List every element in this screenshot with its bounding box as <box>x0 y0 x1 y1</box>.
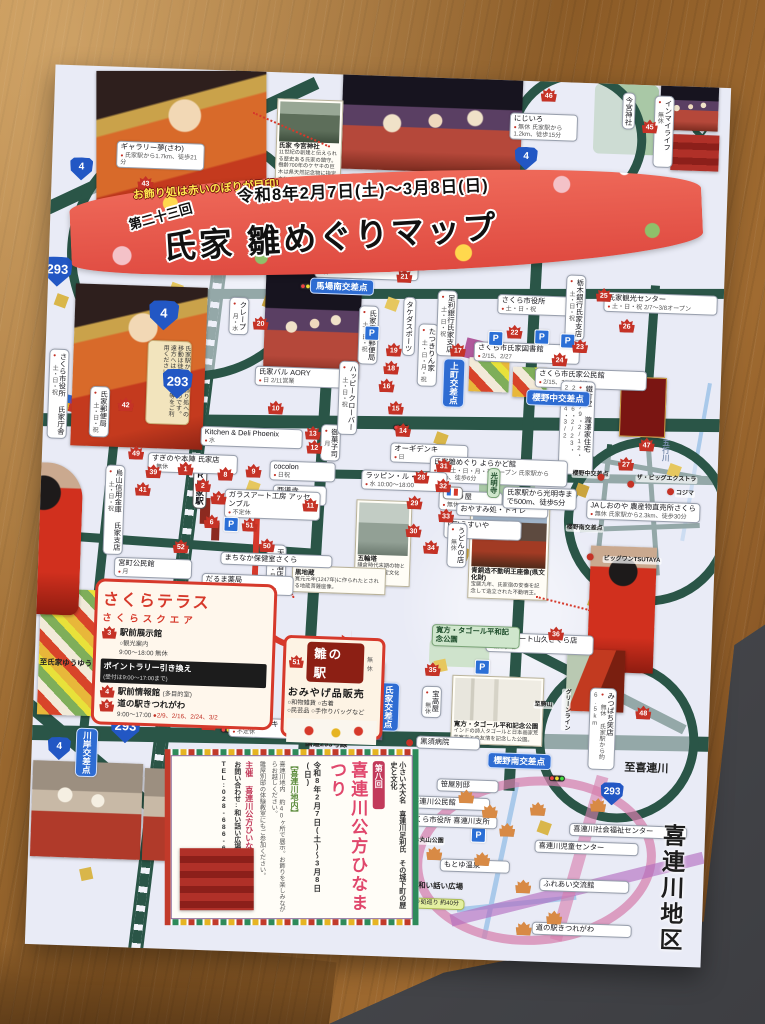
label-text: P <box>539 332 545 342</box>
label-text: 12 <box>310 445 318 452</box>
map-label: 15 <box>388 400 404 415</box>
label-subtext: 不定休 <box>228 508 316 518</box>
label-subtext: 月 <box>118 568 188 578</box>
label-text: 喜連川地区 <box>656 823 687 954</box>
label-text: 栃木銀行氏家支店 <box>574 279 585 338</box>
open-days-label: ●2/9、2/16、2/24、3/2 <box>153 712 218 721</box>
hours-label: 9:00〜17:00 <box>117 711 152 719</box>
hina-meguri-map-sheet: 氏家 今宮神社 11世紀の創建と伝えられる歴史ある氏家の鎮守。樹齢700年のケヤ… <box>25 64 731 967</box>
photo-tagore-park <box>454 678 541 723</box>
label-text: クレープ <box>238 301 248 330</box>
label-text: 47 <box>643 442 651 449</box>
label-text: 笹屋別邸 <box>441 779 470 789</box>
label-text: オーギデンキ <box>394 444 438 455</box>
map-label: ハッピークローバー 土・日・祝 <box>337 361 360 435</box>
marker-badge-3: 3 <box>102 625 117 639</box>
label-text: 45 <box>646 124 654 131</box>
label-text: 7 <box>216 495 220 502</box>
label-text: 293 <box>603 786 620 798</box>
label-text: 51 <box>246 522 254 529</box>
label-text: 26 <box>623 323 631 330</box>
label-subtext: 土・日・祝 <box>501 305 573 315</box>
marker-badge-51: 51 <box>289 654 304 668</box>
map-label: P <box>364 325 380 341</box>
label-text: グリーンライン <box>563 689 570 731</box>
festival-body-2: 雛屋別邸の体験教室にもご参加ください。 <box>258 761 266 913</box>
label-text: 足利銀行氏家支店 <box>446 294 457 353</box>
info-hall-label: 駅前情報館 <box>118 686 161 697</box>
map-label: 宮町公民館 月 <box>114 557 193 580</box>
label-text: 28 <box>417 474 425 481</box>
label-text: 櫻野南交差点 <box>493 755 545 767</box>
label-text: 25 <box>600 293 608 300</box>
map-label: 光明寺 <box>487 468 501 498</box>
label-text: 五行川 <box>661 439 671 462</box>
label-text: P <box>475 830 481 840</box>
photo-tiered-hina-display <box>180 848 254 910</box>
label-text: コジマ <box>676 490 694 497</box>
map-label <box>549 775 565 782</box>
map-label: 櫻野中交差点 <box>526 389 590 408</box>
label-text: ハッピークローバー <box>347 365 358 431</box>
map-label: 10 <box>267 400 283 415</box>
confetti-gold <box>54 293 69 308</box>
label-text: 川岸交差点 <box>81 731 92 774</box>
label-text: 氏家交差点 <box>383 685 394 728</box>
map-label: 至勝山 <box>533 702 553 710</box>
label-text: にじいろ <box>514 114 543 124</box>
label-text: インマイライフ <box>663 100 674 151</box>
red-dotted-link <box>536 596 591 611</box>
label-text: P <box>228 519 234 529</box>
map-label: P <box>223 517 239 533</box>
label-text: 黒須病院 <box>420 737 449 747</box>
map-label: 今宮神社 <box>622 92 636 130</box>
label-text: 18 <box>387 365 395 372</box>
label-text: 9 <box>251 469 255 476</box>
festival-intro: 小さい大大名 喜連川足利氏 その城下町の歴史と文化 <box>388 761 406 913</box>
label-text: さくら市役所 喜連川支所 <box>407 814 490 826</box>
map-label: 26 <box>619 318 635 333</box>
banner-title: 氏家 雛めぐりマップ <box>162 200 500 268</box>
map-label: ラッピン・ル・モ 水 10:00〜18:00 <box>361 469 448 492</box>
festival-title: 喜連川公方ひなまつり <box>326 761 369 913</box>
map-label: 五行川 <box>660 436 672 465</box>
label-text: 293 <box>166 374 188 390</box>
label-subtext: 日祝 <box>273 471 331 480</box>
label-text: ザ・ビッグエクストラ <box>636 475 696 483</box>
label-text: 4 <box>523 151 529 162</box>
map-label: 4 <box>70 157 94 181</box>
marker-badge-5: 5 <box>99 698 114 712</box>
map-label: コジマ <box>675 490 695 498</box>
festival-area: 【喜連川地内】 <box>289 761 299 913</box>
label-text: 烏山信用金庫 氏家支店 <box>113 469 125 551</box>
exhibit-hall-hours: 9:00〜18:00 無休 <box>119 647 168 658</box>
label-text: 30 <box>409 528 417 535</box>
map-label: うどんの店 無休 <box>446 522 468 567</box>
map-label: 19 <box>386 342 402 357</box>
label-text: 22 <box>510 330 518 337</box>
label-subtext: 日 2/11営業 <box>259 377 343 387</box>
map-label: 18 <box>383 360 399 375</box>
map-label: 氏家バル AORY 日 2/11営業 <box>254 366 347 389</box>
label-text: 33 <box>442 513 450 520</box>
label-subtext: 土・日・月・祝 <box>419 327 428 382</box>
label-text: 和い話い広場 <box>418 881 463 892</box>
festival-dates: 令和8年2月7日(土)〜3月8日(日) <box>303 761 322 913</box>
exhibit-hall-label: 駅前展示館 <box>120 627 163 638</box>
map-label: ギャラリー夢(さわ) 氏家駅から1.7km、徒歩21分 <box>116 141 205 171</box>
map-label: 上町交差点 <box>442 358 466 408</box>
map-label: まちなか保健室さくら <box>220 552 332 569</box>
label-text: 41 <box>139 487 147 494</box>
hina-station-closed: 無休 <box>367 655 380 673</box>
label-text: 今宮神社 <box>625 96 635 125</box>
label-text: 10 <box>272 405 280 412</box>
label-text: 50 <box>263 543 271 550</box>
map-label: にじいろ 無休 氏家駅から1.2km、徒歩15分 <box>509 112 578 142</box>
label-text: Kitchen & Deli Phoenix <box>205 427 280 439</box>
label-subtext: 水 <box>204 437 298 448</box>
label-subtext: 月 <box>322 428 330 457</box>
label-text: ビッグワンTSUTAYA <box>604 556 661 564</box>
label-text: 2 <box>201 483 205 490</box>
label-subtext: 水 10:00〜18:00 <box>365 480 443 490</box>
label-text: 櫻野中交差点 <box>532 392 584 404</box>
label-text: 至勝山 <box>534 702 552 709</box>
map-label: 櫻野南交差点 <box>487 752 551 771</box>
map-label: P <box>475 659 491 675</box>
label-text: 29 <box>410 500 418 507</box>
label-text: 35 <box>429 667 437 674</box>
map-label: 川岸交差点 <box>75 728 99 778</box>
label-text: P <box>369 328 375 338</box>
info-hall-note: (多目的室) <box>162 691 192 699</box>
label-text: 喜連川社会福祉センター <box>573 824 654 836</box>
point-rally-hours: (受付は9:00〜17:00まで) <box>103 672 263 687</box>
map-label: 笹屋別邸 <box>436 778 498 793</box>
caption-body: 宝暦九年、氏家宿の安泰を記念して造立された不動明王。 <box>470 582 544 598</box>
label-text: タケダスポーツ <box>404 301 415 352</box>
map-label: 氏家郵便局 土・日・祝 <box>89 386 111 437</box>
map-label: 櫻野南交差点 <box>566 525 604 534</box>
map-label: グリーンライン <box>561 689 572 731</box>
map-label: P <box>488 331 504 347</box>
label-text: 16 <box>382 383 390 390</box>
label-text: さくら市役所 <box>501 295 545 306</box>
map-label: クレープ 月・水 <box>228 297 249 336</box>
photo-hina-tiered-small <box>670 134 719 172</box>
label-text: 氏家郵便局 <box>99 390 109 427</box>
label-text: cocolon <box>274 461 299 471</box>
label-text: 19 <box>390 347 398 354</box>
sakura-terrace-box: さくらテラス さくらスクエア 3 駅前展示館 ○観光案内 9:00〜18:00 … <box>91 578 278 730</box>
map-label: みつばち笑店 無休 氏家駅から約6.5km <box>587 688 617 771</box>
label-text: まちなか保健室さくら <box>224 553 297 565</box>
map-label: 16 <box>378 378 394 393</box>
map-label: Kitchen & Deli Phoenix 水 <box>200 426 303 450</box>
label-text: 14 <box>399 428 407 435</box>
map-label: 41 <box>135 482 151 497</box>
label-text: 17 <box>454 348 462 355</box>
map-label: 栃木銀行氏家支店 土・日・祝 <box>564 274 586 341</box>
label-text: 293 <box>46 261 68 277</box>
label-text: 24 <box>556 357 564 364</box>
label-subtext: 無休 氏家駅から1.2km、徒歩15分 <box>513 123 573 140</box>
hina-station-title: 雛の駅 <box>306 642 364 684</box>
map-label: 馬場南交差点 <box>310 277 374 296</box>
photo-charms <box>286 718 377 745</box>
photo-hina-display-group <box>340 71 523 175</box>
label-subtext: 月・水 <box>230 301 238 332</box>
map-label: 烏山信用金庫 氏家支店 土・日・祝 <box>102 464 125 555</box>
label-text: 36 <box>552 631 560 638</box>
label-text: 6 <box>210 519 214 526</box>
label-text: 喜連川児童センター <box>538 841 604 852</box>
label-text: P <box>565 335 571 345</box>
map-label: 氏家駅から光明寺まで500m、徒歩5分 <box>502 486 577 510</box>
label-text: 39 <box>149 469 157 476</box>
label-text: 氏家バル AORY <box>259 367 311 378</box>
label-text: 23 <box>576 344 584 351</box>
label-text: 27 <box>622 461 630 468</box>
map-label: 喜連川地区 <box>653 820 687 957</box>
label-text: 11 <box>306 503 314 510</box>
souvenir-label: おみやげ品販売 <box>288 683 378 701</box>
map-label: 氏家観光センター 土・日・祝 2/7〜3/8オープン <box>603 292 718 316</box>
map-label: 喜連川公民館 <box>408 795 490 811</box>
label-text: 寛方・タゴール平和記念公園 <box>436 625 510 644</box>
photo-gorinto <box>358 502 410 556</box>
label-text: 20 <box>257 321 265 328</box>
label-text: 32 <box>439 483 447 490</box>
label-text: 宝高屋 <box>431 690 441 712</box>
souvenir-items-2: ○民芸品 ○手作りバッグなど <box>287 707 377 718</box>
map-label: 宝高屋 無休 <box>421 686 442 719</box>
map-label: タケダスポーツ <box>402 297 417 357</box>
label-text: 4 <box>79 161 85 172</box>
map-label: cocolon 日祝 <box>269 460 336 482</box>
label-text: 光明寺 <box>490 472 500 494</box>
label-subtext: 土・日・祝 2/7〜3/8オープン <box>607 303 713 314</box>
map-label: P <box>471 827 487 843</box>
label-text: P <box>493 333 499 343</box>
map-label: 29 <box>406 495 422 510</box>
map-label: 22 <box>506 324 522 339</box>
label-text: 31 <box>440 463 448 470</box>
map-label: P <box>534 329 550 345</box>
map-label: 36 <box>548 626 564 641</box>
label-text: 21 <box>400 274 408 281</box>
festival-body-1: 喜連川地内 約40ヶ所で展示。お飾りを楽しみながらお越しください。 <box>269 761 285 913</box>
label-text: 4 <box>56 741 62 752</box>
label-text: 4 <box>160 305 168 320</box>
map-label: 寛方・タゴール平和記念公園 <box>432 624 521 649</box>
label-text: 櫻野南交差点 <box>567 525 603 532</box>
label-text: P <box>479 662 485 672</box>
map-label: さくら市役所 氏家庁舎 土・日・祝 <box>47 348 70 439</box>
map-label: 4 <box>47 737 71 761</box>
festival-edition-badge: 第八回 <box>372 761 384 809</box>
kubo-festival-box: 小さい大大名 喜連川足利氏 その城下町の歴史と文化 第八回 喜連川公方ひなまつり… <box>165 749 419 925</box>
hina-station-box: 51 雛の駅 無休 おみやげ品販売 ○和物雑貨 ○古着 ○民芸品 ○手作りバッグ… <box>280 635 385 740</box>
label-text: さくら市役所 氏家庁舎 <box>57 353 69 435</box>
label-subtext: 無休 <box>423 690 431 714</box>
label-text: ガラスアート工房 アッセンブル <box>228 490 310 508</box>
label-text: 42 <box>122 402 130 409</box>
label-text: 1 <box>183 466 187 473</box>
map-label: 至喜連川 <box>621 761 671 778</box>
label-text: 宮町公民館 <box>118 558 155 568</box>
label-text: 48 <box>639 710 647 717</box>
label-text: 46 <box>545 93 553 100</box>
map-label: 和い話い広場 <box>415 880 466 893</box>
marker-badge-4: 4 <box>99 684 114 698</box>
label-text: 34 <box>427 545 435 552</box>
label-subtext: 氏家駅から1.7km、徒歩21分 <box>120 152 200 169</box>
point-rally-bar: ポイントラリー引き換え (受付は9:00〜17:00まで) <box>100 658 267 688</box>
label-text: 上町交差点 <box>448 361 459 404</box>
label-text: みつばち笑店 <box>606 692 617 736</box>
label-text: 氏家駅から光明寺まで500m、徒歩5分 <box>506 487 572 507</box>
map-label: JAしおのや 農産物直売所さくら 無休 氏家駅から2.3km、徒歩30分 <box>586 499 701 523</box>
label-text: 道の駅きつれがわ <box>536 923 595 934</box>
label-text: 13 <box>309 431 317 438</box>
label-text: 52 <box>177 544 185 551</box>
map-label: 9 <box>245 463 261 478</box>
map-label: 黒須病院 <box>416 735 480 750</box>
label-text: ふれあい交流館 <box>543 879 594 890</box>
label-text: 馬場南交差点 <box>316 281 368 293</box>
label-text: うどんの店 <box>456 527 466 564</box>
label-text: 49 <box>132 450 140 457</box>
label-text: 至喜連川 <box>624 762 668 776</box>
label-text: 15 <box>392 405 400 412</box>
label-text: 8 <box>223 472 227 479</box>
photo-food-small <box>468 357 509 392</box>
map-label: 34 <box>423 540 439 555</box>
label-subtext: 無休 氏家駅から約6.5km <box>589 692 606 766</box>
